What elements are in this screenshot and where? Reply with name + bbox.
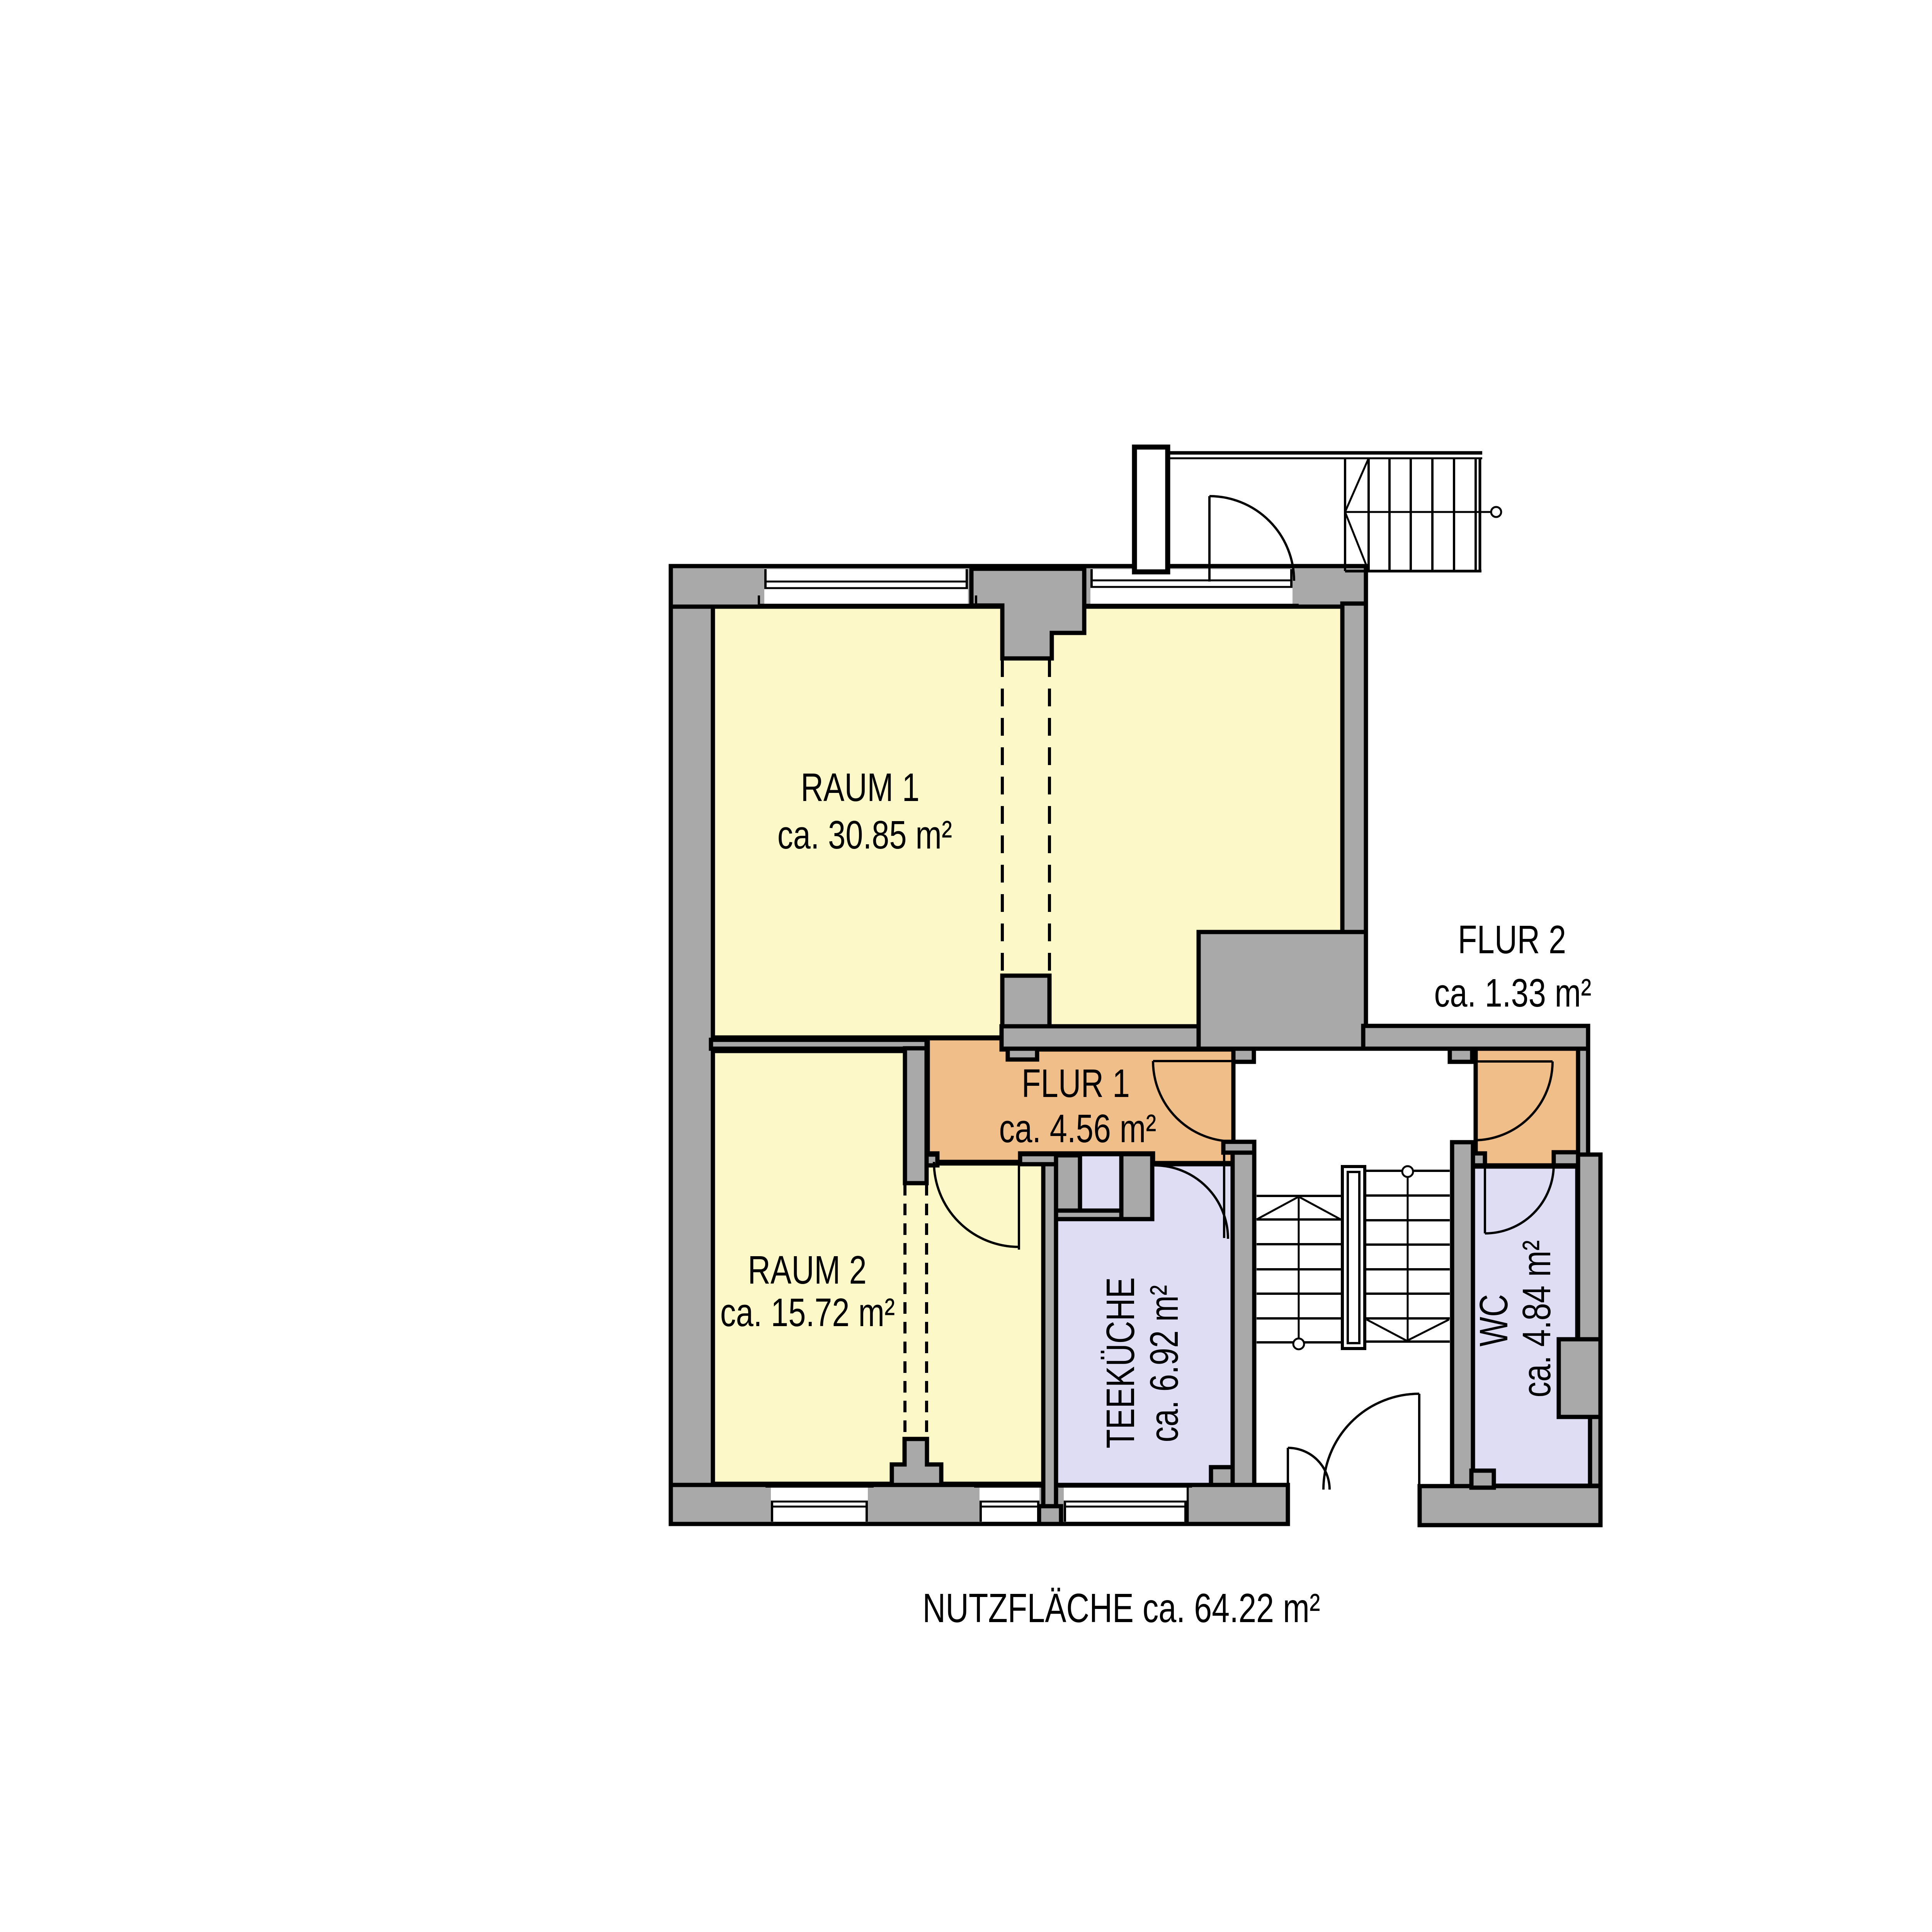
svg-text:FLUR 1: FLUR 1 [1022, 1061, 1130, 1105]
svg-text:TEEKÜCHE: TEEKÜCHE [1098, 1277, 1143, 1449]
svg-text:ca. 6.92 m²: ca. 6.92 m² [1142, 1285, 1186, 1442]
svg-text:RAUM 1: RAUM 1 [801, 765, 919, 810]
svg-text:ca. 4.56 m²: ca. 4.56 m² [999, 1106, 1156, 1151]
svg-text:ca. 1.33 m²: ca. 1.33 m² [1434, 971, 1592, 1015]
svg-text:ca. 15.72 m²: ca. 15.72 m² [720, 1290, 895, 1335]
svg-text:FLUR 2: FLUR 2 [1458, 917, 1566, 962]
svg-text:ca. 30.85 m²: ca. 30.85 m² [777, 813, 952, 857]
svg-text:RAUM 2: RAUM 2 [748, 1248, 866, 1292]
svg-text:ca. 4.84 m²: ca. 4.84 m² [1514, 1240, 1559, 1398]
svg-text:WC: WC [1471, 1294, 1516, 1347]
svg-text:NUTZFLÄCHE ca. 64.22 m²: NUTZFLÄCHE ca. 64.22 m² [922, 1585, 1320, 1631]
